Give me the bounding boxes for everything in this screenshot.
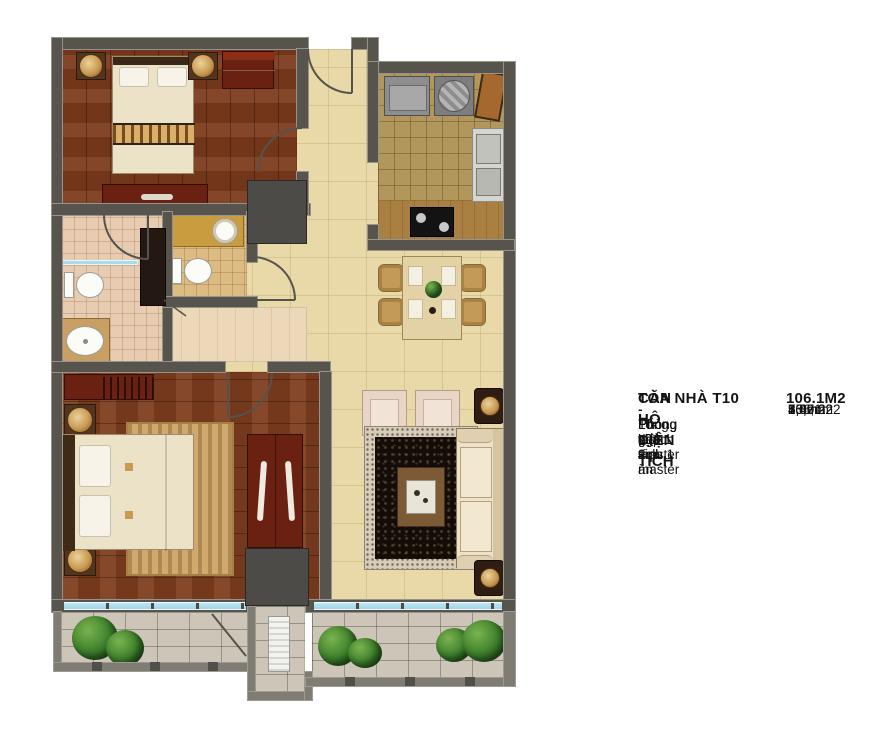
cabinet-door-leaf bbox=[164, 300, 186, 316]
master-door-arc bbox=[228, 373, 272, 417]
bedroom1-door-arc bbox=[258, 128, 302, 172]
entry-door-arc bbox=[308, 49, 352, 93]
area-label: - Lô gia 2 bbox=[638, 402, 656, 462]
floorplan-page: TÒA NHÀ T10 CĂN HỘ DIỆN TÍCH 106.1M2 - T… bbox=[0, 0, 895, 749]
door-swing-overlay bbox=[0, 0, 895, 749]
masterbath-door-arc bbox=[104, 215, 148, 259]
bath1-door-arc bbox=[252, 257, 295, 300]
area-value: 5,4m2 bbox=[788, 402, 826, 417]
balcony-door-leaf bbox=[212, 614, 246, 656]
